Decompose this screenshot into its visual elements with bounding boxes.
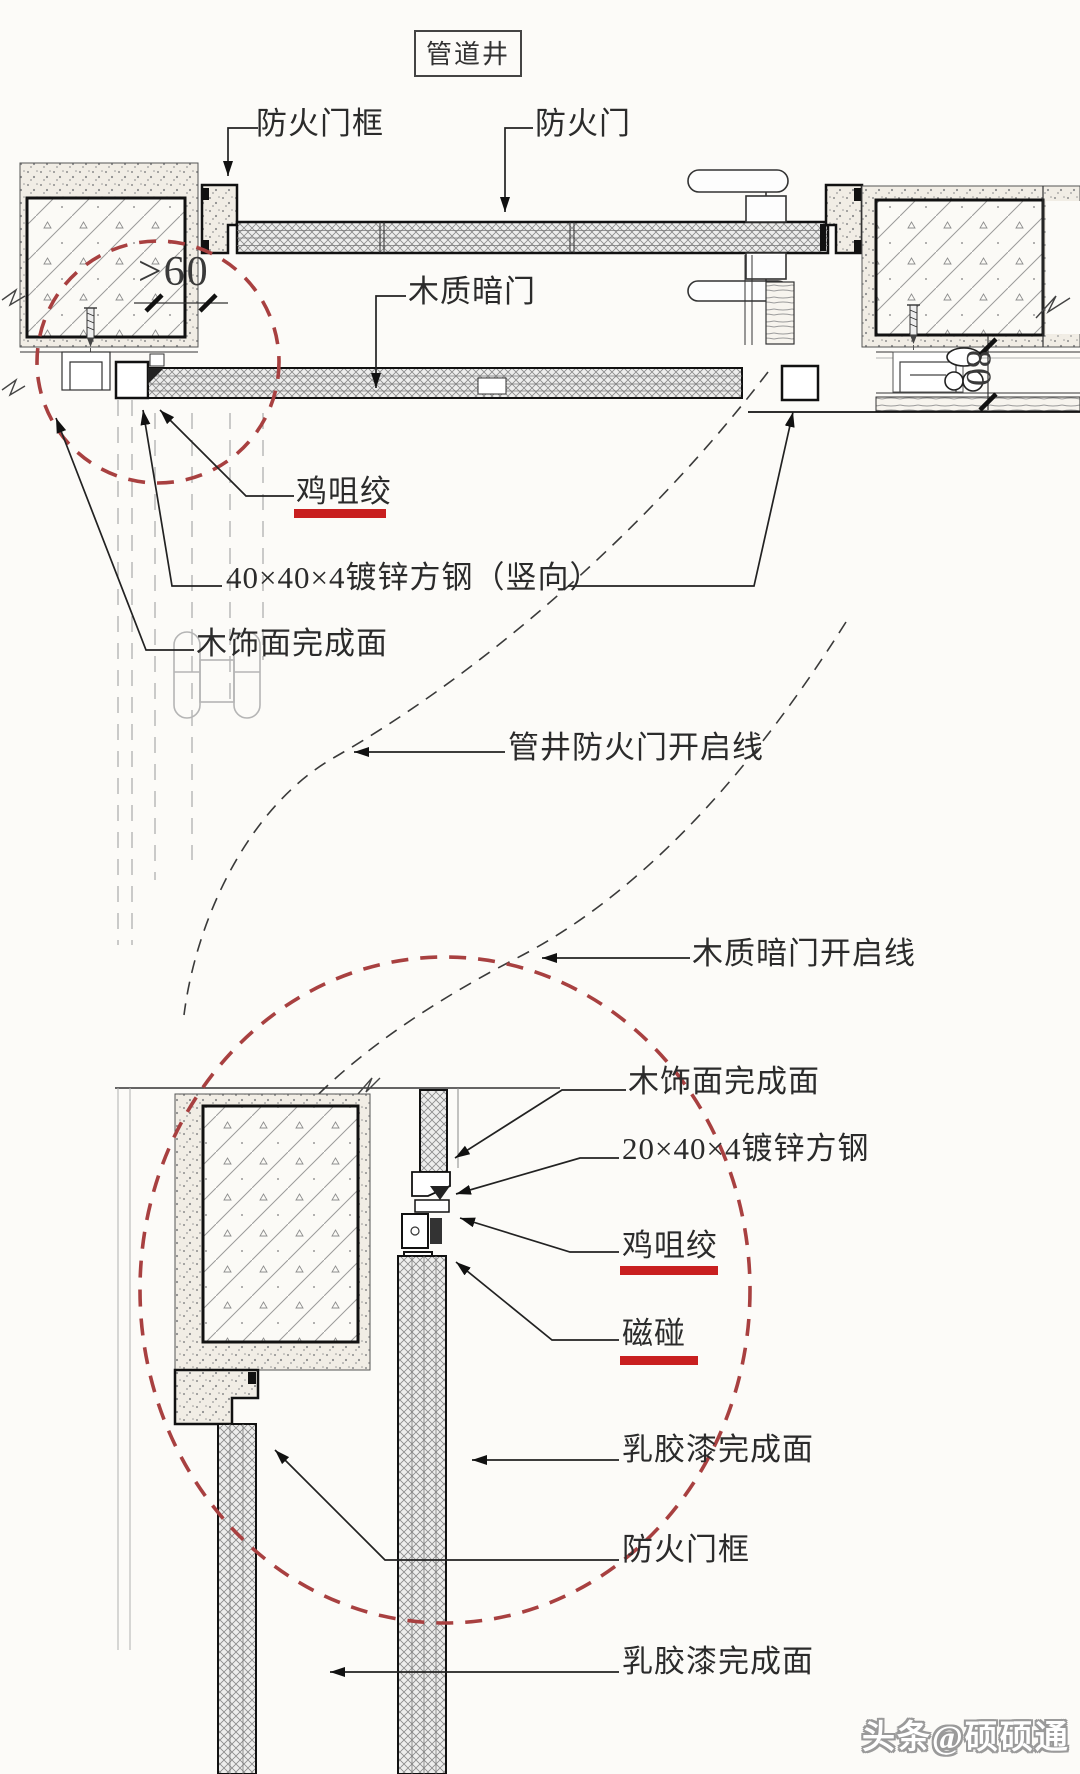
red-underline-magnetic-catch — [620, 1356, 698, 1365]
plan-fire-door-frame-left — [202, 185, 237, 253]
plan-hidden-door — [20, 347, 742, 398]
label-latex-paint-finish-2: 乳胶漆完成面 — [622, 1644, 814, 1680]
red-underline-beak-plan — [294, 509, 386, 518]
label-hidden-door-swing-line: 木质暗门开启线 — [692, 936, 916, 972]
fire-door-swing-arc — [184, 372, 768, 1015]
drawing-title: 管道井 — [414, 30, 522, 77]
label-chicken-beak-joint-section: 鸡咀绞 — [622, 1228, 718, 1264]
plan-fire-door-leaf — [237, 222, 828, 253]
label-wood-veneer-finish-plan: 木饰面完成面 — [196, 626, 388, 662]
label-steel-tube-plan: 40×40×4镀锌方钢（竖向） — [226, 560, 601, 596]
cad-detail-drawing: 管道井 防火门框 防火门 木质暗门 鸡咀绞 40×40×4镀锌方钢（竖向） 木饰… — [0, 0, 1080, 1774]
label-fire-door-swing-line: 管井防火门开启线 — [508, 730, 764, 766]
plan-fire-door-frame-right — [826, 185, 862, 253]
label-latex-paint-finish-1: 乳胶漆完成面 — [622, 1432, 814, 1468]
watermark: 头条@硕硕通 — [862, 1710, 1070, 1758]
label-wood-veneer-finish-section: 木饰面完成面 — [628, 1064, 820, 1100]
label-fire-door-frame-plan: 防火门框 — [256, 106, 384, 142]
label-wood-hidden-door: 木质暗门 — [408, 274, 536, 310]
label-chicken-beak-joint-plan: 鸡咀绞 — [296, 474, 392, 510]
label-fire-door-plan: 防火门 — [535, 106, 631, 142]
red-underline-beak-section — [620, 1266, 718, 1275]
dimension-text-80: 80 — [958, 350, 1000, 386]
dimension-text-60: >60 — [138, 248, 210, 296]
label-fire-door-frame-section: 防火门框 — [622, 1532, 750, 1568]
hidden-door-swing-arc — [305, 622, 846, 1108]
label-magnetic-catch: 磁碰 — [622, 1316, 686, 1352]
label-steel-tube-section: 20×40×4镀锌方钢 — [622, 1131, 869, 1167]
